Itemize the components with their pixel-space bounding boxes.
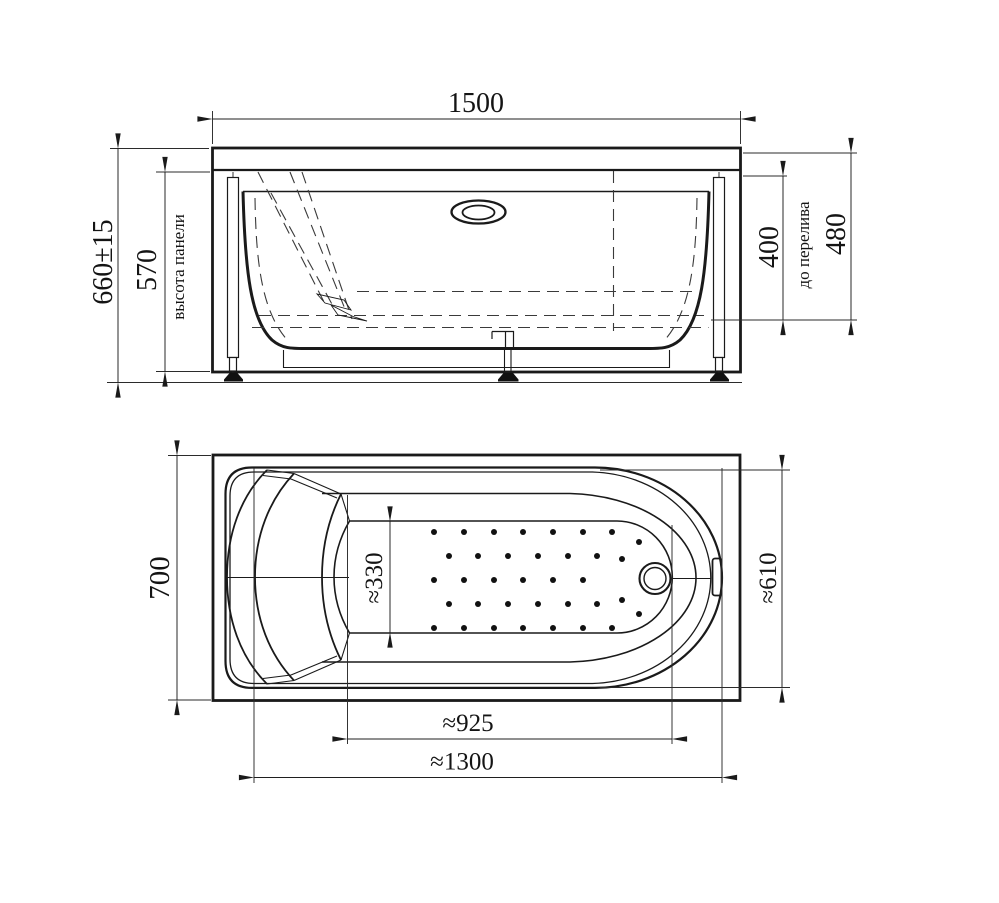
bathtub-technical-drawing: 1500 660±15 570 высота панели 400 до пер… (0, 0, 999, 903)
dim-label-front-panel-height: 570 (132, 249, 163, 291)
dim-label-front-total-height: 660±15 (88, 219, 119, 304)
dim-label-inner-length: ≈1300 (430, 749, 494, 776)
overflow-fixture-front (452, 201, 506, 224)
dim-caption-panel-height: высота панели (169, 214, 188, 320)
front-leg-right (710, 172, 729, 383)
dim-label-overflow-depth: 400 (754, 226, 785, 268)
dim-label-plan-width: 700 (144, 556, 176, 600)
plan-headrest (226, 470, 350, 684)
front-leg-center (492, 332, 519, 382)
headrest-projection (317, 294, 367, 321)
dimension-plan-floor-length: ≈925 (348, 710, 673, 739)
dim-label-floor-length: ≈925 (442, 710, 493, 737)
foot-center (498, 373, 519, 382)
dim-label-floor-width: ≈330 (361, 552, 388, 603)
dimension-plan-floor-width: ≈330 (361, 522, 390, 633)
front-elevation-view: 1500 660±15 570 высота панели 400 до пер… (88, 88, 857, 383)
top-plan-view: 700 ≈330 ≈610 ≈925 ≈1300 (144, 455, 790, 783)
front-hidden-lines (252, 171, 709, 342)
plan-antislip-dots (431, 529, 642, 631)
dim-label-end-width: ≈610 (755, 552, 782, 603)
front-leg-left (224, 172, 243, 383)
dimension-front-overflow-depth: 400 до перелива (743, 176, 813, 320)
front-outline (107, 148, 742, 383)
dim-caption-overflow: до перелива (794, 201, 813, 288)
dim-label-front-width: 1500 (448, 88, 504, 119)
dimension-plan-width: 700 (144, 456, 211, 701)
dim-label-rim-height: 480 (821, 213, 852, 255)
foot-left (224, 373, 243, 382)
dimension-front-panel-height: 570 высота панели (132, 172, 210, 372)
technical-drawing-page: 1500 660±15 570 высота панели 400 до пер… (0, 0, 999, 903)
dimension-front-width: 1500 (213, 88, 741, 144)
foot-right (710, 373, 729, 382)
dimension-plan-inner-length: ≈1300 (254, 749, 722, 778)
